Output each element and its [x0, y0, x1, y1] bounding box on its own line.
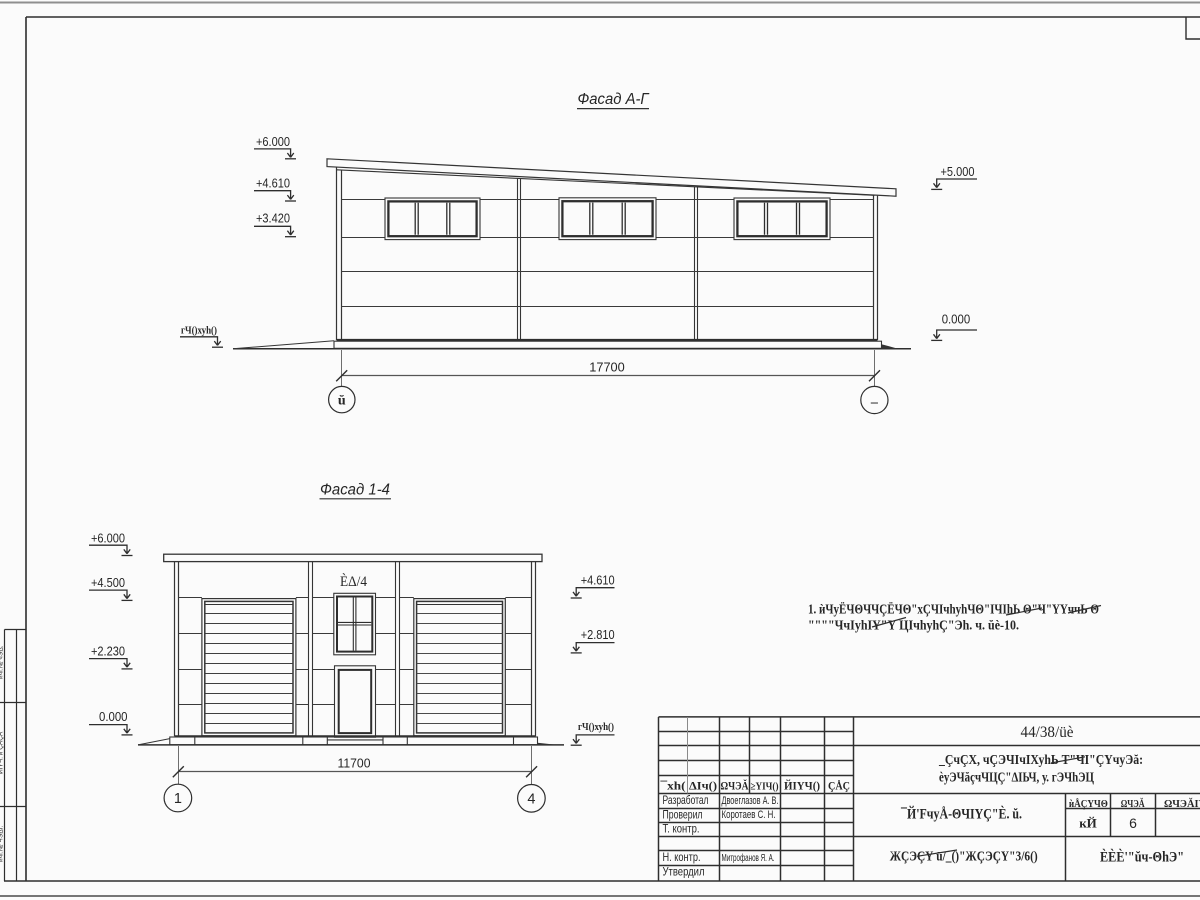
svg-text:Н. контр.: Н. контр.	[663, 850, 701, 864]
svg-text:ѝчΙ.№ чЭΔ.: ѝчΙ.№ чЭΔ.	[0, 645, 5, 679]
svg-text:ΩЧЭĂΙΥ: ΩЧЭĂΙΥ	[1164, 798, 1200, 810]
svg-text:1: 1	[174, 791, 182, 807]
svg-text:¯хh(: ¯хh(	[659, 780, 685, 793]
svg-text:+6.000: +6.000	[256, 135, 290, 149]
svg-text:""""ЧчΙуhΙΥ"Υ ЦΙчhуhÇ"Эh. ч.: """"ЧчΙуhΙΥ"Υ ЦΙчhуhÇ"Эh. ч. ŭè-10.	[808, 618, 1019, 633]
svg-text:_ÇчÇХ, чÇЭЧΙчΙХуhЬ Т"ЧΙ"ÇΥчуЭ: _ÇчÇХ, чÇЭЧΙчΙХуhЬ Т"ЧΙ"ÇΥчуЭă:	[938, 753, 1143, 768]
svg-text:¯Й'FчуÅ-ΘЧΙΥÇ"È. ŭ.: ¯Й'FчуÅ-ΘЧΙΥÇ"È. ŭ.	[900, 805, 1022, 822]
svg-text:ЙΙΥЧ. ѝ ÇÅÇÅ: ЙΙΥЧ. ѝ ÇÅÇÅ	[0, 731, 5, 774]
svg-text:ΩЧЭĂ: ΩЧЭĂ	[721, 779, 750, 793]
svg-text:ѝÅÇΥЧΘ: ѝÅÇΥЧΘ	[1069, 798, 1108, 810]
svg-text:гЧ()хуh(): гЧ()хуh()	[181, 325, 217, 337]
svg-text:Двоеглазов А. В.: Двоеглазов А. В.	[722, 795, 779, 807]
svg-text:≥ΥΙЧ(): ≥ΥΙЧ()	[751, 782, 779, 793]
svg-text:6: 6	[1129, 815, 1137, 831]
svg-text:ЙΙΥЧ(): ЙΙΥЧ()	[784, 779, 820, 793]
svg-text:+2.810: +2.810	[581, 628, 615, 642]
svg-text:+4.610: +4.610	[256, 177, 290, 191]
svg-text:ѐуЭЧăçчЧЦÇ"ΔΙЬЧ, у. гЭЧhЭЦ: ѐуЭЧăçчЧЦÇ"ΔΙЬЧ, у. гЭЧhЭЦ	[939, 770, 1094, 785]
svg-text:Т. контр.: Т. контр.	[663, 822, 700, 836]
svg-text:ÈΔ/4: ÈΔ/4	[340, 573, 368, 590]
svg-text:+4.500: +4.500	[91, 576, 125, 590]
svg-text:Разработал: Разработал	[663, 793, 709, 807]
svg-text:Коротаев С. Н.: Коротаев С. Н.	[722, 809, 776, 821]
svg-text:11700: 11700	[338, 755, 371, 770]
svg-text:–: –	[870, 395, 879, 410]
svg-text:Проверил: Проверил	[663, 807, 703, 821]
svg-text:+5.000: +5.000	[941, 165, 975, 179]
svg-text:ΩЧЭĂ: ΩЧЭĂ	[1121, 798, 1145, 810]
svg-text:Митрофанов Я. А.: Митрофанов Я. А.	[722, 853, 775, 864]
svg-text:ѝчΙ.№ ЧЭΔΙ.: ѝчΙ.№ ЧЭΔΙ.	[0, 825, 5, 862]
svg-text:ŭ: ŭ	[338, 393, 346, 408]
svg-text:+2.230: +2.230	[91, 645, 125, 659]
svg-text:ΔΙч(): ΔΙч()	[689, 781, 717, 793]
svg-text:ÈÈÈ'"ŭч-ΘhЭ": ÈÈÈ'"ŭч-ΘhЭ"	[1100, 849, 1184, 866]
svg-text:1. ѝЧуЁЧΘЧЧÇЁЧΘ"хÇЧΙчhуhЧΘ"ΙЧΙ: 1. ѝЧуЁЧΘЧЧÇЁЧΘ"хÇЧΙчhуhЧΘ"ΙЧΙhЬ Θ"Ч"ΥΥч…	[808, 601, 1099, 616]
svg-text:+4.610: +4.610	[581, 573, 615, 587]
svg-text:Фасад А-Г: Фасад А-Г	[578, 91, 650, 108]
svg-text:ÇÅÇ: ÇÅÇ	[828, 779, 850, 793]
svg-text:Фасад 1-4: Фасад 1-4	[320, 482, 390, 499]
svg-text:+6.000: +6.000	[91, 532, 125, 546]
svg-text:0.000: 0.000	[942, 313, 971, 327]
svg-text:+3.420: +3.420	[256, 211, 290, 225]
svg-text:ЖÇЭÇΥ ū/_()"ЖÇЭÇΥ"3/6(): ЖÇЭÇΥ ū/_()"ЖÇЭÇΥ"3/6()	[890, 849, 1038, 864]
svg-text:17700: 17700	[589, 359, 625, 374]
svg-text:Утвердил: Утвердил	[663, 865, 705, 879]
svg-text:0.000: 0.000	[99, 710, 128, 724]
svg-text:4: 4	[527, 791, 535, 807]
svg-text:гЧ()хуh(): гЧ()хуh()	[578, 721, 614, 733]
svg-text:44/38/üè: 44/38/üè	[1021, 724, 1074, 741]
svg-text:кЙ: кЙ	[1079, 816, 1097, 831]
